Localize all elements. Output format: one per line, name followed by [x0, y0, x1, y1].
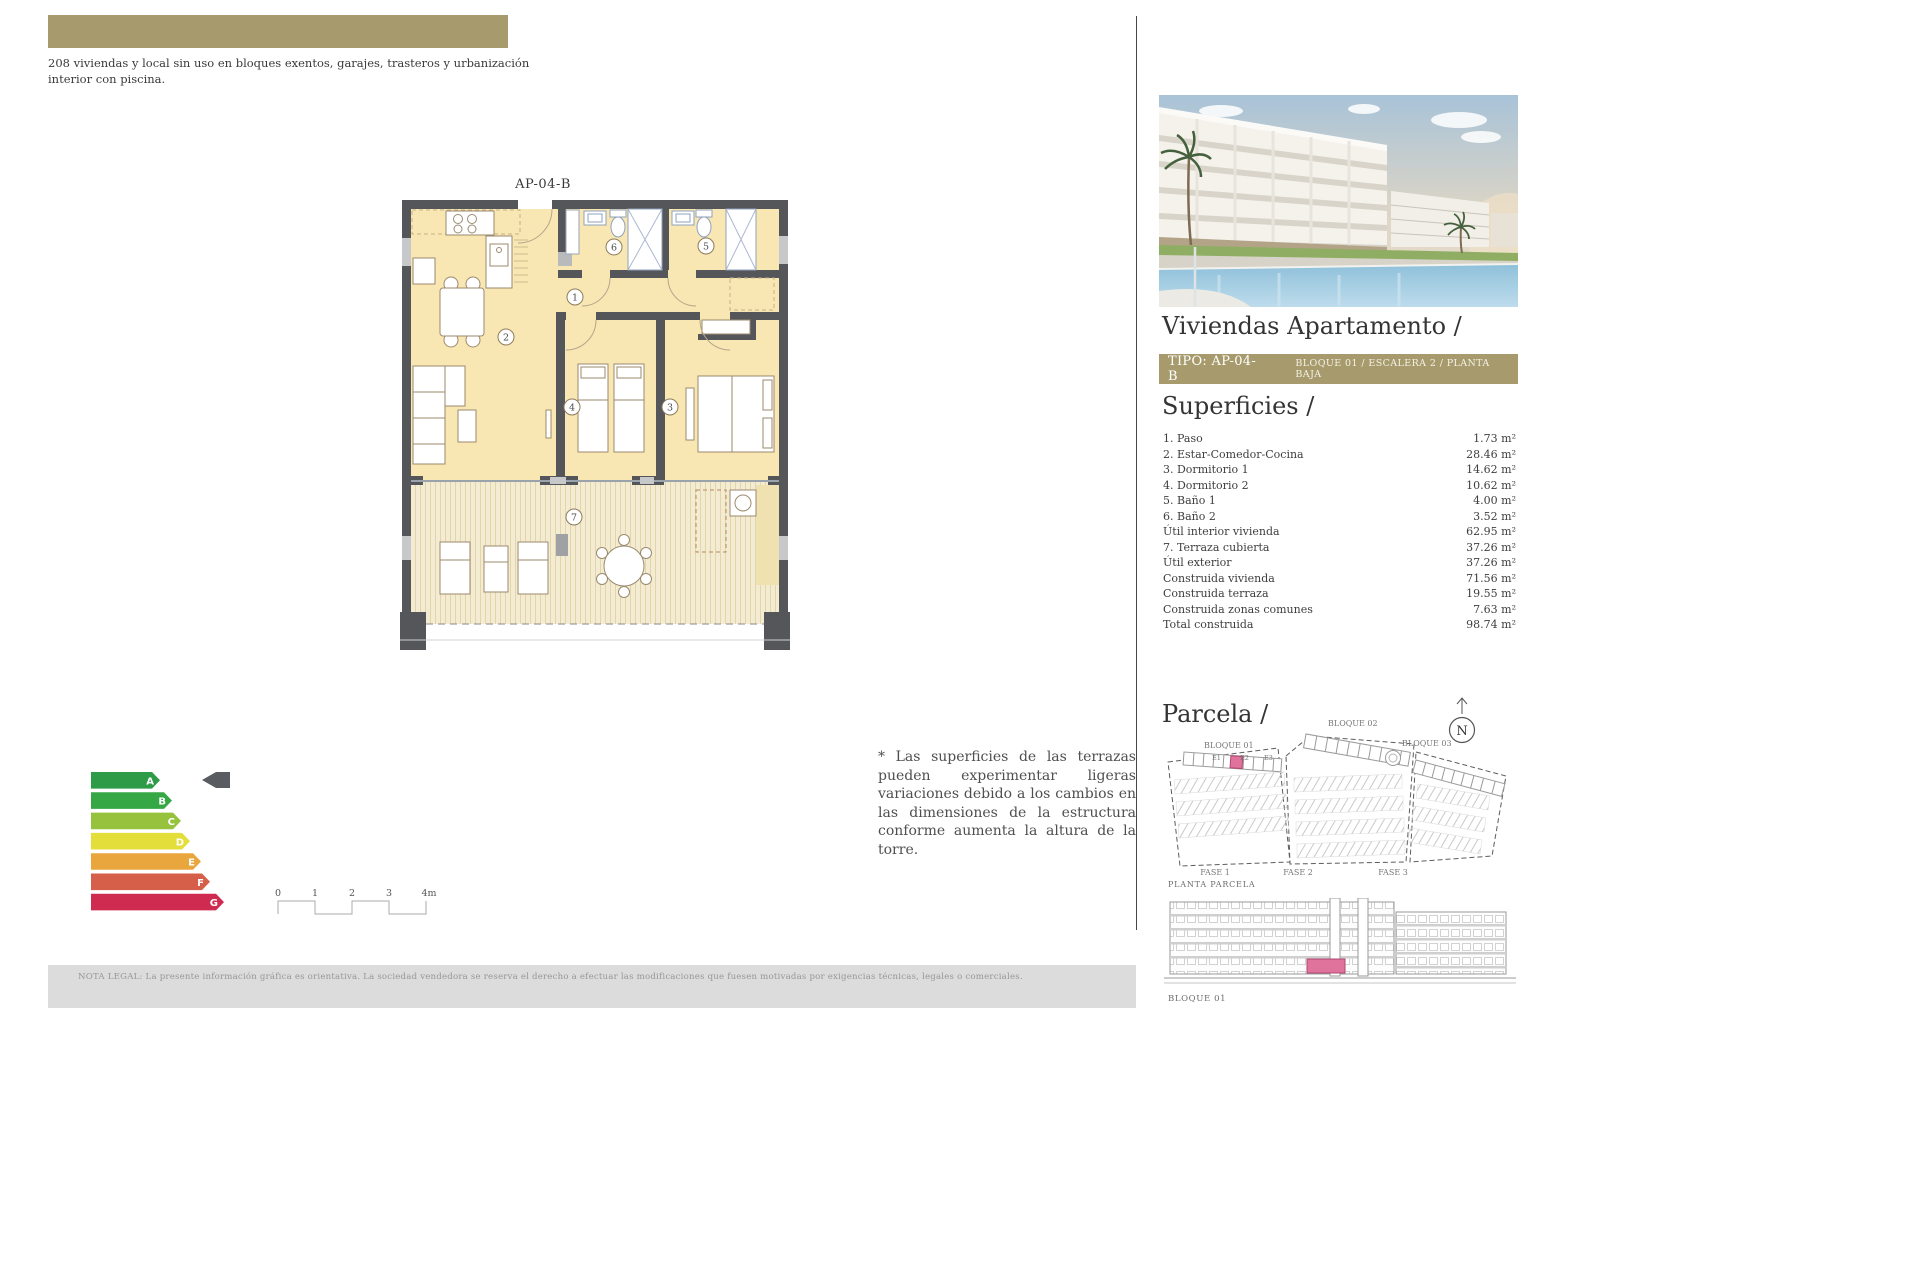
siteplan-drawing: BLOQUE 01 BLOQUE 02 BLOQUE 03 E1 E2 E3 F… [1160, 712, 1514, 880]
block-02-label: BLOQUE 02 [1328, 719, 1378, 728]
row-label: Total construida [1163, 618, 1254, 631]
panel-title: Viviendas Apartamento / [1162, 312, 1518, 340]
row-value: 62.95 m² [1466, 525, 1516, 538]
brochure-page: 208 viviendas y local sin uso en bloques… [0, 0, 1920, 1280]
row-label: 1. Paso [1163, 432, 1203, 445]
project-description: 208 viviendas y local sin uso en bloques… [48, 55, 534, 87]
escalera-2-label: E2 [1240, 754, 1249, 762]
room-number-4: 4 [569, 403, 575, 414]
table-row: 2. Estar-Comedor-Cocina28.46 m² [1163, 447, 1516, 463]
energy-grade-e [91, 853, 201, 870]
fase-2-label: FASE 2 [1283, 868, 1313, 877]
row-label: 3. Dormitorio 1 [1163, 463, 1249, 476]
far-building [1491, 213, 1518, 247]
floorplan-drawing: 1 2 3 4 5 6 7 [400, 200, 790, 650]
table-row: 5. Baño 14.00 m² [1163, 493, 1516, 509]
highlighted-apartment [1307, 959, 1345, 973]
svg-text:1: 1 [312, 888, 318, 899]
row-value: 28.46 m² [1466, 448, 1516, 461]
row-label: 6. Baño 2 [1163, 510, 1216, 523]
row-value: 98.74 m² [1466, 618, 1516, 631]
scale-bar: 0 1 2 3 4m [268, 884, 448, 920]
superficies-heading: Superficies / [1162, 392, 1314, 420]
escalera-1-label: E1 [1212, 754, 1221, 762]
roundabout [1386, 751, 1401, 766]
room-number-3: 3 [667, 403, 673, 414]
svg-text:0: 0 [275, 888, 281, 899]
energy-grade-f [91, 874, 210, 891]
room-number-1: 1 [572, 293, 578, 304]
escalera-3-label: E3 [1264, 754, 1273, 762]
parking-rows [1174, 772, 1490, 858]
svg-text:G: G [210, 898, 218, 909]
svg-text:3: 3 [386, 888, 392, 899]
table-row: 4. Dormitorio 210.62 m² [1163, 478, 1516, 494]
superficies-table: 1. Paso1.73 m² 2. Estar-Comedor-Cocina28… [1163, 431, 1516, 633]
legal-bar: NOTA LEGAL: La presente información gráf… [48, 965, 1136, 1008]
row-label: Construida terraza [1163, 587, 1269, 600]
table-row: 3. Dormitorio 114.62 m² [1163, 462, 1516, 478]
table-row: 7. Terraza cubierta37.26 m² [1163, 540, 1516, 556]
table-row: Construida zonas comunes7.63 m² [1163, 602, 1516, 618]
row-label: Útil exterior [1163, 556, 1232, 569]
svg-text:C: C [168, 817, 175, 828]
table-row: Útil interior vivienda62.95 m² [1163, 524, 1516, 540]
block-01-label: BLOQUE 01 [1204, 741, 1254, 750]
row-value: 3.52 m² [1473, 510, 1516, 523]
row-value: 71.56 m² [1466, 572, 1516, 585]
elevation-drawing [1164, 898, 1516, 992]
room-number-6: 6 [611, 243, 617, 254]
row-value: 10.62 m² [1466, 479, 1516, 492]
table-row: Construida vivienda71.56 m² [1163, 571, 1516, 587]
fase-1-label: FASE 1 [1200, 868, 1230, 877]
row-label: 2. Estar-Comedor-Cocina [1163, 448, 1304, 461]
energy-pointer-arrow [202, 772, 230, 788]
elevation-right-wing [1396, 912, 1506, 974]
floorplan-title: AP-04-B [498, 177, 588, 192]
room-number-2: 2 [503, 333, 509, 344]
elevation-caption: BLOQUE 01 [1168, 994, 1226, 1004]
svg-text:D: D [176, 837, 184, 848]
svg-text:4m: 4m [421, 888, 436, 899]
row-value: 19.55 m² [1466, 587, 1516, 600]
legal-text: NOTA LEGAL: La presente información gráf… [78, 972, 1136, 982]
table-row: Construida terraza19.55 m² [1163, 586, 1516, 602]
tipo-label: TIPO: AP-04-B [1168, 354, 1265, 384]
row-value: 14.62 m² [1466, 463, 1516, 476]
table-row: Total construida98.74 m² [1163, 617, 1516, 633]
table-row: 1. Paso1.73 m² [1163, 431, 1516, 447]
svg-text:2: 2 [349, 888, 355, 899]
room-number-5: 5 [703, 242, 709, 253]
energy-grade-g [91, 894, 224, 911]
block-03-label: BLOQUE 03 [1402, 739, 1452, 748]
panel-divider [1136, 16, 1137, 930]
building-render-photo [1159, 95, 1518, 307]
row-label: Útil interior vivienda [1163, 525, 1280, 538]
tipo-bar: TIPO: AP-04-B BLOQUE 01 / ESCALERA 2 / P… [1159, 354, 1518, 384]
table-row: Útil exterior37.26 m² [1163, 555, 1516, 571]
row-label: Construida vivienda [1163, 572, 1275, 585]
table-row: 6. Baño 23.52 m² [1163, 509, 1516, 525]
terrace-note: * Las superficies de las terrazas pueden… [878, 748, 1136, 860]
brand-logo-bar [48, 15, 508, 48]
row-label: 5. Baño 1 [1163, 494, 1216, 507]
scale-bar-line [278, 901, 426, 914]
svg-text:F: F [197, 878, 204, 889]
row-label: 4. Dormitorio 2 [1163, 479, 1249, 492]
stair-tower-2 [1358, 898, 1368, 976]
row-label: 7. Terraza cubierta [1163, 541, 1269, 554]
svg-text:B: B [158, 797, 166, 808]
room-number-7: 7 [571, 513, 577, 524]
row-label: Construida zonas comunes [1163, 603, 1313, 616]
row-value: 37.26 m² [1466, 556, 1516, 569]
row-value: 7.63 m² [1473, 603, 1516, 616]
dining-set [440, 277, 484, 347]
row-value: 37.26 m² [1466, 541, 1516, 554]
tipo-location: BLOQUE 01 / ESCALERA 2 / PLANTA BAJA [1295, 358, 1518, 380]
terrace-side-strip [756, 485, 779, 585]
svg-text:E: E [188, 858, 195, 869]
fase-3-label: FASE 3 [1378, 868, 1408, 877]
svg-text:A: A [146, 776, 154, 787]
row-value: 4.00 m² [1473, 494, 1516, 507]
scale-tick-labels: 0 1 2 3 4m [275, 888, 437, 899]
planta-parcela-caption: PLANTA PARCELA [1168, 880, 1255, 889]
row-value: 1.73 m² [1473, 432, 1516, 445]
